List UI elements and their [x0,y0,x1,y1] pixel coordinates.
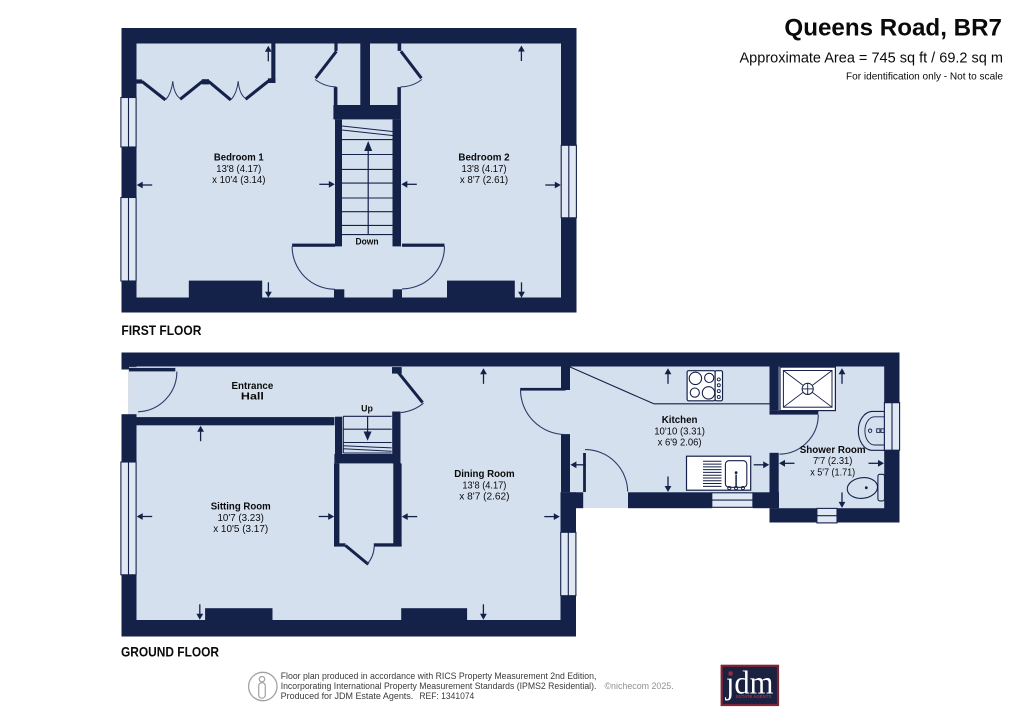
svg-text:13'8 (4.17): 13'8 (4.17) [462,164,507,175]
svg-text:10'10 (3.31): 10'10 (3.31) [654,426,705,437]
svg-text:Queens Road, BR7: Queens Road, BR7 [784,15,1002,42]
svg-text:ESTATE AGENTS: ESTATE AGENTS [736,694,771,699]
svg-text:Shower Room: Shower Room [800,445,866,456]
svg-text:Down: Down [355,237,378,247]
svg-text:x 5'7 (1.71): x 5'7 (1.71) [810,467,855,478]
svg-text:13'8 (4.17): 13'8 (4.17) [462,480,506,491]
svg-text:Incorporating International Pr: Incorporating International Property Mea… [281,681,597,691]
svg-text:Floor plan produced in accorda: Floor plan produced in accordance with R… [281,671,597,681]
svg-text:x 10'5 (3.17): x 10'5 (3.17) [213,524,268,535]
svg-text:Sitting Room: Sitting Room [211,502,271,513]
svg-text:For identification only - Not: For identification only - Not to scale [846,70,1003,82]
svg-text:Up: Up [361,404,373,414]
svg-text:10'7 (3.23): 10'7 (3.23) [218,513,264,524]
svg-text:GROUND FLOOR: GROUND FLOOR [121,644,219,659]
svg-text:©nichecom 2025.: ©nichecom 2025. [605,681,674,691]
svg-text:Produced for JDM Estate Agents: Produced for JDM Estate Agents. [281,691,414,701]
svg-text:Entrance: Entrance [232,381,274,392]
svg-text:FIRST FLOOR: FIRST FLOOR [121,323,201,338]
svg-text:Bedroom 2: Bedroom 2 [458,152,509,163]
svg-text:Approximate Area = 745 sq ft /: Approximate Area = 745 sq ft / 69.2 sq m [740,50,1004,67]
svg-text:7'7 (2.31): 7'7 (2.31) [813,456,853,467]
svg-text:REF: 1341074: REF: 1341074 [419,691,474,701]
svg-text:x 10'4 (3.14): x 10'4 (3.14) [212,175,265,186]
svg-text:Hall: Hall [241,392,264,403]
svg-text:x 8'7 (2.61): x 8'7 (2.61) [460,175,508,186]
svg-text:x 8'7 (2.62): x 8'7 (2.62) [459,492,509,503]
svg-text:Dining Room: Dining Room [454,469,514,480]
svg-text:Kitchen: Kitchen [662,415,698,426]
svg-text:x 6'9 2.06): x 6'9 2.06) [658,438,702,449]
svg-text:Bedroom 1: Bedroom 1 [214,152,264,163]
svg-text:13'8 (4.17): 13'8 (4.17) [216,164,261,175]
